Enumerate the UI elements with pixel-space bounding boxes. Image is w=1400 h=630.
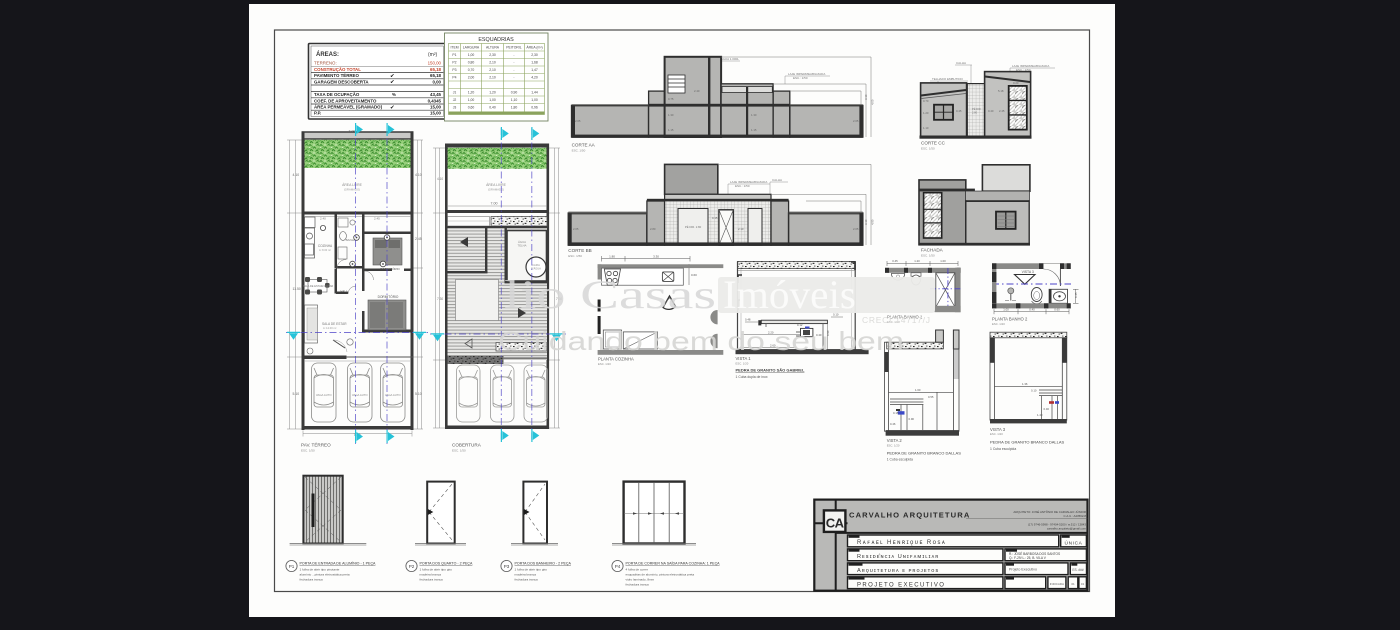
- svg-text:VAGA AUTO: VAGA AUTO: [352, 393, 369, 397]
- svg-text:1.15: 1.15: [668, 128, 674, 132]
- svg-text:PORTA DOS QUARTO - 2 PEÇA: PORTA DOS QUARTO - 2 PEÇA: [420, 562, 473, 566]
- svg-text:0.40: 0.40: [988, 109, 994, 113]
- svg-text:P1: P1: [289, 564, 295, 569]
- svg-text:3.10: 3.10: [864, 94, 868, 100]
- svg-text:VISTA 3: VISTA 3: [1022, 270, 1034, 274]
- svg-text:PAV. TÉRREO: PAV. TÉRREO: [301, 442, 331, 448]
- svg-text:0.46: 0.46: [890, 422, 896, 426]
- svg-text:2,10: 2,10: [489, 76, 496, 80]
- svg-text:1 Cuba esculpida: 1 Cuba esculpida: [990, 447, 1016, 451]
- svg-text:PORTA DE CORRER NA SAÍDA PARA: PORTA DE CORRER NA SAÍDA PARA COZINHA: 1…: [626, 562, 721, 566]
- svg-text:J3: J3: [453, 106, 457, 110]
- svg-text:-: -: [513, 61, 514, 65]
- svg-text:1.00: 1.00: [1003, 308, 1009, 312]
- svg-text:1.36: 1.36: [1022, 382, 1028, 386]
- svg-text:Rᴇꜱɪᴅᴇ̂ɴᴄɪᴀ Uɴɪꜰᴀᴍɪʟɪᴀʀ: Rᴇꜱɪᴅᴇ̂ɴᴄɪᴀ Uɴɪꜰᴀᴍɪʟɪᴀʀ: [857, 554, 939, 560]
- svg-text:FACHADA: FACHADA: [921, 248, 944, 253]
- svg-text:P3: P3: [504, 564, 510, 569]
- svg-text:1.40: 1.40: [1037, 413, 1043, 417]
- svg-text:PÉ DIR. 2.80: PÉ DIR. 2.80: [685, 224, 702, 229]
- svg-text:2.80: 2.80: [972, 111, 978, 115]
- svg-text:11.50: 11.50: [293, 287, 301, 291]
- svg-text:0.20: 0.20: [1013, 81, 1019, 85]
- svg-text:1,00: 1,00: [468, 53, 475, 57]
- svg-text:PORTA DOS BANHEIRO - 2 PEÇA: PORTA DOS BANHEIRO - 2 PEÇA: [515, 562, 572, 566]
- svg-text:PEDRA DE GRANITO SÃO GABRIEL: PEDRA DE GRANITO SÃO GABRIEL: [736, 368, 805, 373]
- svg-text:LARGURA: LARGURA: [463, 46, 480, 50]
- svg-text:TELHADO EMBUTIDO: TELHADO EMBUTIDO: [932, 77, 964, 81]
- svg-text:ITEM: ITEM: [450, 46, 458, 50]
- svg-text:vidro laminado, 8mm: vidro laminado, 8mm: [626, 578, 655, 582]
- svg-text:0.45: 0.45: [892, 259, 898, 263]
- svg-text:1,10: 1,10: [511, 98, 518, 102]
- svg-text:2.05: 2.05: [853, 227, 859, 231]
- svg-text:5.10: 5.10: [293, 392, 300, 396]
- svg-text:1,47: 1,47: [531, 68, 538, 72]
- svg-text:madeira branca: madeira branca: [515, 573, 537, 577]
- svg-text:D'ÁGUA: D'ÁGUA: [531, 267, 541, 271]
- svg-text:ESC.: 1/50: ESC.: 1/50: [735, 184, 750, 188]
- svg-text:fechadura tranca: fechadura tranca: [515, 578, 538, 582]
- svg-text:ESC. 1/20: ESC. 1/20: [736, 362, 749, 366]
- svg-text:3.10: 3.10: [864, 219, 868, 225]
- svg-text:1,00: 1,00: [489, 98, 496, 102]
- svg-text:0,60: 0,60: [468, 106, 475, 110]
- svg-text:Imóveis: Imóveis: [723, 272, 856, 317]
- svg-text:J2: J2: [453, 98, 457, 102]
- svg-text:ALTURA: ALTURA: [486, 46, 500, 50]
- svg-text:HALL: HALL: [340, 289, 348, 293]
- svg-text:VAGA AUTO: VAGA AUTO: [316, 393, 333, 397]
- svg-text:2.45: 2.45: [415, 237, 422, 241]
- svg-text:Q.: F-29/ L.: 25, B. VILA V: Q.: F-29/ L.: 25, B. VILA V: [1009, 556, 1047, 560]
- svg-text:65,18: 65,18: [430, 73, 442, 78]
- svg-text:1 folha de abrir tipo pivotant: 1 folha de abrir tipo pivotante: [300, 568, 340, 572]
- svg-text:ESC. 1/50: ESC. 1/50: [301, 449, 315, 453]
- svg-text:PLANTA BANHO 2: PLANTA BANHO 2: [992, 317, 1028, 322]
- svg-text:150,00: 150,00: [428, 61, 442, 66]
- svg-text:fechadura tranca: fechadura tranca: [300, 578, 323, 582]
- svg-text:carvalho.arquiteto@gmail.com: carvalho.arquiteto@gmail.com: [1047, 526, 1087, 530]
- svg-text:1,00: 1,00: [468, 98, 475, 102]
- svg-text:1.00: 1.00: [940, 259, 946, 263]
- svg-text:fechadura tranca: fechadura tranca: [420, 578, 443, 582]
- svg-text:ESC. 1/20: ESC. 1/20: [992, 322, 1005, 326]
- svg-text:TAXA DE OCUPAÇÃO: TAXA DE OCUPAÇÃO: [314, 92, 360, 97]
- svg-text:1,00: 1,00: [531, 98, 538, 102]
- svg-text:ÁREA (m²): ÁREA (m²): [526, 46, 542, 50]
- svg-text:7.00: 7.00: [491, 202, 498, 206]
- svg-text:CALHA: CALHA: [956, 61, 966, 65]
- svg-text:01: 01: [1071, 582, 1075, 586]
- svg-text:P.P.: P.P.: [314, 111, 321, 116]
- svg-text:2.05: 2.05: [853, 119, 859, 123]
- svg-text:PEDRA DE GRANITO BRANCO DALLAS: PEDRA DE GRANITO BRANCO DALLAS: [887, 451, 962, 456]
- svg-text:Cuidando bem do seu bem: Cuidando bem do seu bem: [498, 326, 904, 356]
- svg-text:lio Casas: lio Casas: [504, 272, 716, 317]
- svg-text:1 folha de abrir tipo giro: 1 folha de abrir tipo giro: [420, 568, 453, 572]
- svg-text:ES. ###: ES. ###: [1072, 568, 1084, 572]
- svg-text:0,4345: 0,4345: [428, 98, 442, 103]
- svg-text:(GRAMADO): (GRAMADO): [344, 188, 360, 192]
- svg-text:0.15: 0.15: [893, 411, 899, 415]
- svg-text:4 folha de correr: 4 folha de correr: [626, 568, 649, 572]
- svg-text:2.40: 2.40: [694, 89, 700, 93]
- svg-text:4.10: 4.10: [415, 173, 422, 177]
- svg-text:2.05: 2.05: [575, 119, 581, 123]
- svg-text:2.05: 2.05: [573, 227, 579, 231]
- svg-text:ÚNICA: ÚNICA: [1065, 539, 1083, 546]
- svg-text:1.20: 1.20: [914, 259, 920, 263]
- svg-text:4,20: 4,20: [531, 76, 538, 80]
- svg-text:1.60: 1.60: [915, 388, 921, 392]
- svg-text:1 Cuba esculpida: 1 Cuba esculpida: [887, 458, 913, 462]
- svg-text:0.60: 0.60: [1054, 308, 1060, 312]
- svg-text:1,44: 1,44: [531, 91, 538, 95]
- svg-text:PROJETO EXECUTIVO: PROJETO EXECUTIVO: [857, 582, 945, 588]
- svg-text:-: -: [513, 68, 514, 72]
- svg-text:VISTA 2: VISTA 2: [887, 438, 903, 443]
- svg-text:CAIXA: CAIXA: [532, 263, 540, 267]
- svg-text:CORTE BB: CORTE BB: [568, 248, 591, 253]
- svg-text:esquadrias de alumínio, pintur: esquadrias de alumínio, pintura eletrost…: [626, 573, 695, 577]
- svg-text:0,00: 0,00: [432, 79, 441, 84]
- svg-text:1,20: 1,20: [489, 91, 496, 95]
- svg-text:ESC. 1/50: ESC. 1/50: [452, 449, 466, 453]
- svg-text:0.45: 0.45: [1074, 292, 1078, 298]
- svg-text:CORTE AA: CORTE AA: [572, 143, 596, 148]
- svg-text:4.10: 4.10: [293, 173, 300, 177]
- svg-text:P4: P4: [452, 76, 456, 80]
- svg-text:PEITORIL: PEITORIL: [506, 46, 522, 50]
- svg-text:VISTA 3: VISTA 3: [990, 427, 1006, 432]
- svg-text:0,70: 0,70: [468, 68, 475, 72]
- svg-text:ESC. 1/20: ESC. 1/20: [887, 443, 900, 447]
- svg-text:15,00: 15,00: [430, 111, 442, 116]
- svg-text:Rᴀꜰᴀᴇʟ Hᴇɴʀɪǫᴜᴇ Rᴏꜱᴀ: Rᴀꜰᴀᴇʟ Hᴇɴʀɪǫᴜᴇ Rᴏꜱᴀ: [857, 540, 946, 546]
- svg-text:2.45: 2.45: [374, 217, 380, 221]
- svg-text:-: -: [513, 53, 514, 57]
- svg-text:alumínio ...pintura eletrostát: alumínio ...pintura eletrostática preta: [300, 573, 350, 577]
- svg-text:43,45: 43,45: [430, 92, 442, 97]
- svg-text:0,80: 0,80: [468, 61, 475, 65]
- svg-text:Projeto Executivo: Projeto Executivo: [1009, 568, 1037, 572]
- svg-text:0.55: 0.55: [928, 395, 934, 399]
- svg-text:1,68: 1,68: [531, 61, 538, 65]
- svg-text:2.10: 2.10: [738, 227, 744, 231]
- svg-text:PAVIMENTO TÉRREO: PAVIMENTO TÉRREO: [314, 73, 359, 78]
- svg-text:CA: CA: [826, 516, 845, 531]
- svg-text:%: %: [392, 92, 396, 97]
- svg-text:P3: P3: [452, 68, 456, 72]
- svg-text:(m²): (m²): [428, 52, 437, 58]
- svg-text:TELHA: TELHA: [517, 244, 526, 248]
- svg-text:CONSTRUÇÃO TOTAL: CONSTRUÇÃO TOTAL: [314, 67, 361, 72]
- svg-text:2.45: 2.45: [999, 109, 1005, 113]
- svg-text:P2: P2: [452, 61, 456, 65]
- svg-text:2,30: 2,30: [531, 53, 538, 57]
- svg-text:PEDRA DE GRANITO BRANCO DALLAS: PEDRA DE GRANITO BRANCO DALLAS: [990, 439, 1065, 444]
- svg-text:ESC.: 1/50: ESC.: 1/50: [793, 76, 808, 80]
- svg-text:Aʀǫᴜɪᴛᴇᴛᴜʀᴀ ᴇ ᴘʀᴏᴊᴇᴛᴏꜱ: Aʀǫᴜɪᴛᴇᴛᴜʀᴀ ᴇ ᴘʀᴏᴊᴇᴛᴏꜱ: [857, 568, 939, 574]
- svg-text:madeira branca: madeira branca: [420, 573, 442, 577]
- svg-text:4.10: 4.10: [437, 177, 443, 181]
- svg-text:CALHA: CALHA: [772, 178, 782, 182]
- svg-text:ÁREA LIVRE: ÁREA LIVRE: [342, 183, 363, 187]
- svg-text:2,10: 2,10: [489, 61, 496, 65]
- svg-text:(GRAMADO): (GRAMADO): [488, 188, 504, 192]
- svg-text:C.A.U.: A43562-8: C.A.U.: A43562-8: [1064, 514, 1087, 518]
- svg-text:3.30: 3.30: [653, 255, 659, 259]
- svg-text:2,00: 2,00: [468, 76, 475, 80]
- svg-text:1.15: 1.15: [751, 128, 757, 132]
- svg-text:A: 12.00 m²: A: 12.00 m²: [323, 326, 337, 330]
- svg-text:1.30: 1.30: [668, 113, 674, 117]
- svg-text:SALA DE ESTAR/JANTAR: SALA DE ESTAR/JANTAR: [303, 284, 334, 288]
- svg-text:CARVALHO ARQUITETURA: CARVALHO ARQUITETURA: [849, 511, 970, 520]
- svg-text:0.40: 0.40: [1029, 308, 1035, 312]
- svg-text:1.80: 1.80: [609, 255, 615, 259]
- svg-text:CORTE CC: CORTE CC: [921, 141, 946, 146]
- svg-text:1.20: 1.20: [923, 111, 929, 115]
- svg-text:VISTA 1: VISTA 1: [736, 356, 752, 361]
- svg-text:4.00: 4.00: [871, 99, 875, 105]
- svg-text:COZINHA: COZINHA: [318, 244, 333, 248]
- svg-text:ÁREAS:: ÁREAS:: [316, 51, 339, 58]
- svg-text:TERRENO:: TERRENO:: [314, 61, 337, 66]
- svg-text:7.30: 7.30: [437, 297, 443, 301]
- svg-text:INDICADA: INDICADA: [1050, 582, 1064, 586]
- svg-text:SALA DE ESTAR: SALA DE ESTAR: [322, 322, 347, 326]
- svg-text:2.80: 2.80: [650, 227, 656, 231]
- svg-text:1 folha de abrir tipo giro: 1 folha de abrir tipo giro: [515, 568, 548, 572]
- svg-text:5.10: 5.10: [415, 392, 422, 396]
- svg-text:2.40: 2.40: [320, 217, 326, 221]
- svg-text:P4: P4: [615, 564, 621, 569]
- svg-text:2,10: 2,10: [489, 68, 496, 72]
- svg-text:1,80: 1,80: [511, 106, 518, 110]
- svg-text:ESC. 1/20: ESC. 1/20: [598, 362, 611, 366]
- svg-text:ESC. 1/50: ESC. 1/50: [921, 147, 935, 151]
- svg-text:ESC. 1/20: ESC. 1/20: [990, 432, 1003, 436]
- svg-text:1 Cuba dupla de inox: 1 Cuba dupla de inox: [736, 375, 768, 379]
- svg-text:0,96: 0,96: [531, 106, 538, 110]
- svg-text:0.90: 0.90: [909, 417, 915, 421]
- svg-text:65,18: 65,18: [430, 67, 442, 72]
- svg-text:0,90: 0,90: [511, 91, 518, 95]
- svg-text:COEF. DE APROVEITAMENTO: COEF. DE APROVEITAMENTO: [314, 98, 377, 103]
- svg-text:1,20: 1,20: [468, 91, 475, 95]
- svg-text:0.45: 0.45: [956, 109, 962, 113]
- svg-text:1.10: 1.10: [923, 126, 929, 130]
- svg-text:ESC. 1/50: ESC. 1/50: [568, 254, 582, 258]
- svg-text:P2: P2: [409, 564, 415, 569]
- svg-text:0.75: 0.75: [668, 97, 674, 101]
- svg-text:01: 01: [1081, 582, 1085, 586]
- svg-text:5.18: 5.18: [998, 89, 1004, 93]
- svg-text:P1: P1: [452, 53, 456, 57]
- svg-text:PORTA DE ENTRADA DE ALUMÍNIO -: PORTA DE ENTRADA DE ALUMÍNIO - 1 PEÇA: [300, 562, 377, 566]
- svg-text:J1: J1: [453, 91, 457, 95]
- svg-text:ESQUADRIAS: ESQUADRIAS: [478, 37, 514, 43]
- svg-text:-: -: [513, 76, 514, 80]
- svg-text:ÁREA LIVRE: ÁREA LIVRE: [486, 183, 507, 187]
- svg-text:CRECI 14717/J: CRECI 14717/J: [862, 315, 930, 325]
- svg-text:2,30: 2,30: [489, 53, 496, 57]
- svg-text:fechadura tranca: fechadura tranca: [626, 583, 649, 587]
- svg-text:A: 8.00 m²: A: 8.00 m²: [319, 248, 331, 252]
- svg-text:1.30: 1.30: [751, 113, 757, 117]
- svg-text:COBERTURA: COBERTURA: [452, 443, 482, 448]
- svg-text:15,00: 15,00: [430, 105, 442, 110]
- svg-text:0.70: 0.70: [923, 99, 929, 103]
- svg-text:ÁREA PERMEÁVEL (GRAMADO): ÁREA PERMEÁVEL (GRAMADO): [314, 105, 383, 110]
- svg-text:ESC. 1/50: ESC. 1/50: [572, 149, 586, 153]
- svg-text:0.48: 0.48: [745, 318, 751, 322]
- svg-text:0.10: 0.10: [1031, 389, 1037, 393]
- svg-text:GARAGEM DESCOBERTA: GARAGEM DESCOBERTA: [314, 79, 369, 84]
- svg-text:PLANTA COZINHA: PLANTA COZINHA: [598, 357, 634, 362]
- svg-text:ESC. 1/50: ESC. 1/50: [921, 254, 935, 258]
- svg-text:0.46: 0.46: [1044, 407, 1050, 411]
- svg-text:DORMITÓRIO: DORMITÓRIO: [378, 294, 399, 299]
- svg-text:4.90: 4.90: [871, 219, 875, 225]
- svg-text:0.15: 0.15: [712, 216, 718, 220]
- svg-text:0,40: 0,40: [489, 106, 496, 110]
